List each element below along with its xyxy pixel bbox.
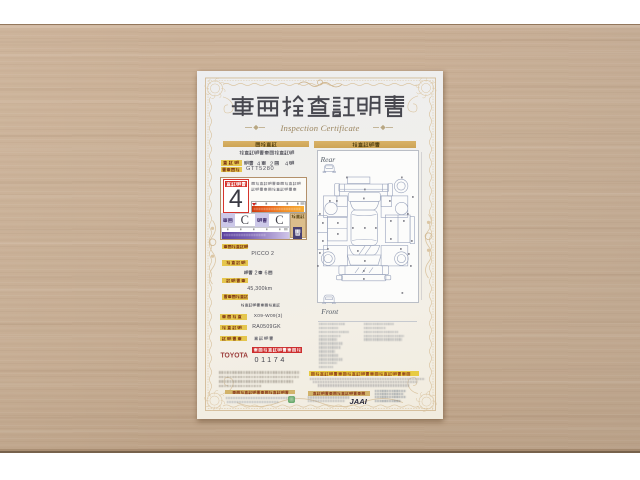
- svg-text:6: 6: [264, 270, 267, 275]
- svg-text:2: 2: [255, 270, 258, 275]
- svg-text:TOYOTA: TOYOTA: [221, 351, 249, 359]
